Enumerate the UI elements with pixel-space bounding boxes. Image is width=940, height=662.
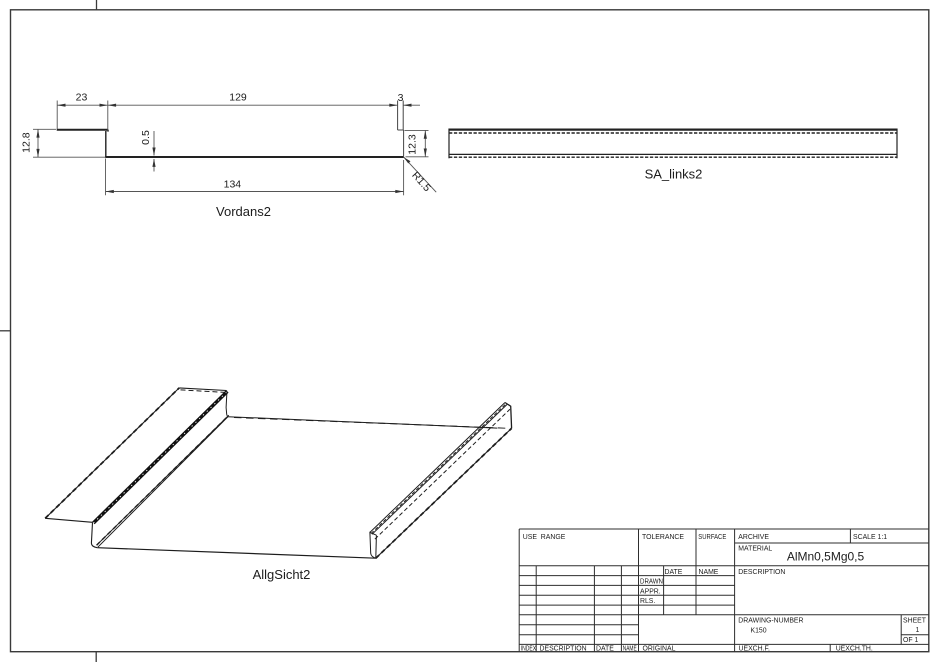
svg-text:DATE: DATE xyxy=(596,646,614,653)
svg-text:DRAWN: DRAWN xyxy=(640,579,663,586)
svg-text:SCALE: SCALE xyxy=(853,534,876,541)
svg-text:Vordans2: Vordans2 xyxy=(216,204,271,219)
svg-text:AllgSicht2: AllgSicht2 xyxy=(253,567,311,582)
svg-text:OF 1: OF 1 xyxy=(903,637,918,644)
svg-text:NAME: NAME xyxy=(699,569,719,576)
svg-text:DESCRIPTION: DESCRIPTION xyxy=(540,646,587,653)
svg-text:SURFACE: SURFACE xyxy=(698,534,726,541)
svg-text:USE RANGE: USE RANGE xyxy=(523,534,566,541)
svg-text:UEXCH.F.: UEXCH.F. xyxy=(739,646,770,653)
svg-text:AlMn0,5Mg0,5: AlMn0,5Mg0,5 xyxy=(787,550,865,564)
svg-text:1: 1 xyxy=(916,627,920,634)
svg-text:INDEX: INDEX xyxy=(521,646,537,653)
svg-text:APPR.: APPR. xyxy=(640,588,661,595)
svg-text:UEXCH.TH.: UEXCH.TH. xyxy=(836,646,873,653)
svg-text:12.8: 12.8 xyxy=(21,132,33,153)
svg-text:ARCHIVE: ARCHIVE xyxy=(738,534,769,541)
svg-text:ORIGINAL: ORIGINAL xyxy=(643,646,676,653)
svg-text:RLS.: RLS. xyxy=(640,598,655,605)
svg-text:K150: K150 xyxy=(751,628,767,635)
svg-text:3: 3 xyxy=(398,92,404,104)
svg-text:SHEET: SHEET xyxy=(903,618,927,625)
svg-text:DRAWING-NUMBER: DRAWING-NUMBER xyxy=(738,618,803,625)
svg-text:129: 129 xyxy=(229,92,247,104)
svg-text:12.3: 12.3 xyxy=(407,134,419,155)
svg-text:SA_links2: SA_links2 xyxy=(645,167,703,182)
svg-text:MATERIAL: MATERIAL xyxy=(738,546,772,553)
svg-text:0.5: 0.5 xyxy=(140,130,152,145)
svg-text:DATE: DATE xyxy=(665,569,683,576)
svg-text:NAME: NAME xyxy=(623,646,637,653)
svg-text:R1.5: R1.5 xyxy=(409,170,433,195)
svg-text:134: 134 xyxy=(224,179,242,191)
svg-text:1:1: 1:1 xyxy=(878,534,888,541)
svg-text:DESCRIPTION: DESCRIPTION xyxy=(738,569,785,576)
svg-text:23: 23 xyxy=(76,92,88,104)
svg-text:TOLERANCE: TOLERANCE xyxy=(642,534,684,541)
